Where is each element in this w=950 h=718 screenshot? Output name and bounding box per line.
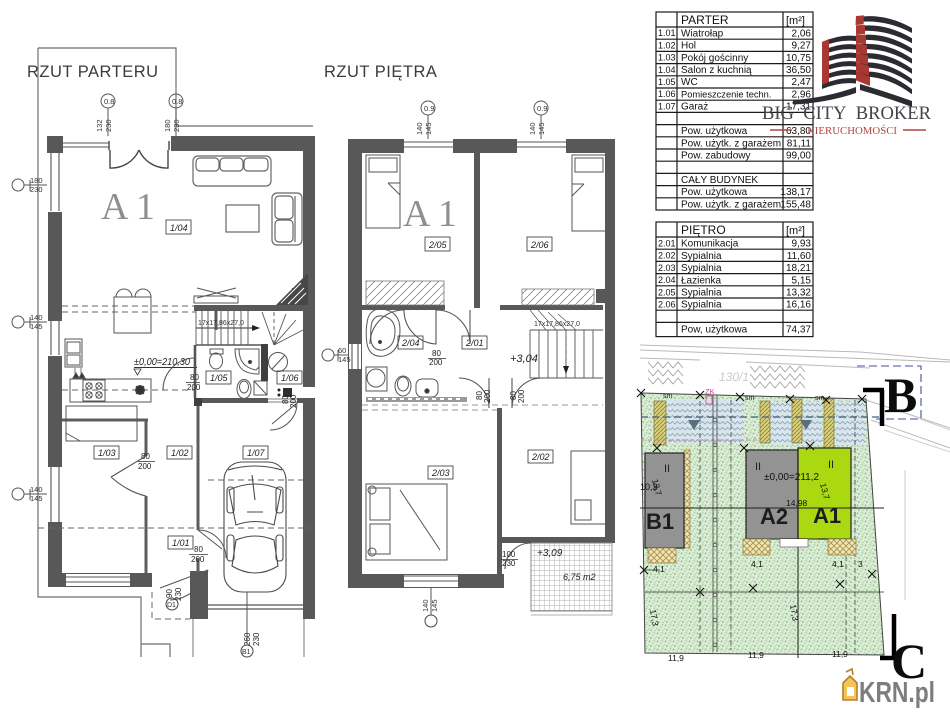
svg-text:RZUT PARTERU: RZUT PARTERU [27, 63, 159, 81]
svg-text:145: 145 [537, 122, 546, 135]
svg-text:230: 230 [252, 632, 261, 646]
svg-text:2,47: 2,47 [792, 77, 812, 88]
svg-text:200: 200 [429, 358, 443, 367]
svg-text:140: 140 [421, 599, 430, 612]
svg-text:Hol: Hol [681, 41, 696, 52]
svg-text:A 1: A 1 [403, 193, 457, 235]
svg-text:II: II [828, 459, 834, 471]
svg-text:Sypialnia: Sypialnia [681, 300, 722, 311]
svg-text:0.8: 0.8 [172, 97, 182, 106]
svg-text:sm: sm [663, 393, 673, 400]
svg-text:1/04: 1/04 [170, 223, 188, 233]
svg-text:1.03: 1.03 [658, 53, 676, 63]
svg-text:2/06: 2/06 [530, 240, 549, 250]
svg-text:180: 180 [163, 119, 172, 132]
svg-text:Sypialnia: Sypialnia [681, 263, 722, 274]
svg-text:sm: sm [815, 395, 825, 402]
svg-text:11,9: 11,9 [748, 650, 764, 660]
svg-text:1.05: 1.05 [658, 77, 676, 87]
svg-text:10,75: 10,75 [786, 53, 811, 64]
svg-text:B1: B1 [646, 509, 674, 534]
svg-text:81,11: 81,11 [787, 138, 812, 149]
svg-text:2.04: 2.04 [658, 275, 676, 285]
svg-text:0.9: 0.9 [424, 104, 434, 113]
svg-text:NIERUCHOMOŚCI: NIERUCHOMOŚCI [807, 125, 898, 137]
svg-text:11,60: 11,60 [787, 251, 812, 262]
svg-text:138,17: 138,17 [780, 187, 811, 198]
svg-text:1/03: 1/03 [98, 448, 116, 458]
svg-text:17x17,86x27,0: 17x17,86x27,0 [198, 320, 244, 327]
svg-text:1.01: 1.01 [658, 28, 676, 38]
svg-text:2/02: 2/02 [531, 452, 550, 462]
svg-text:Sypialnia: Sypialnia [681, 251, 722, 262]
svg-text:9,93: 9,93 [792, 239, 812, 250]
svg-text:sm: sm [745, 395, 755, 402]
svg-text:±0,00=210,30: ±0,00=210,30 [134, 356, 190, 368]
svg-text:180: 180 [30, 176, 43, 185]
svg-text:[m²]: [m²] [786, 15, 805, 27]
svg-text:0.9: 0.9 [537, 104, 547, 113]
svg-text:4,1: 4,1 [653, 564, 665, 574]
svg-text:1/06: 1/06 [281, 373, 299, 383]
svg-text:A1: A1 [813, 503, 841, 528]
svg-text:9,27: 9,27 [792, 41, 812, 52]
svg-text:1/02: 1/02 [171, 448, 189, 458]
svg-text:11,9: 11,9 [668, 653, 684, 663]
svg-text:BIG CITY BROKER: BIG CITY BROKER [762, 103, 931, 124]
svg-text:13,32: 13,32 [786, 288, 811, 299]
svg-text:145: 145 [424, 122, 433, 135]
svg-text:140: 140 [30, 313, 43, 322]
svg-text:PIĘTRO: PIĘTRO [681, 223, 726, 237]
svg-text:Salon z kuchnią: Salon z kuchnią [681, 65, 752, 76]
svg-text:Pow. użytkowa: Pow. użytkowa [681, 187, 748, 198]
svg-text:200: 200 [138, 462, 152, 471]
svg-text:90: 90 [165, 589, 174, 598]
svg-text:60: 60 [338, 346, 346, 355]
svg-text:Sypialnia: Sypialnia [681, 288, 722, 299]
svg-text:230: 230 [172, 119, 181, 132]
svg-text:155,48: 155,48 [780, 199, 811, 210]
svg-text:2.05: 2.05 [658, 287, 676, 297]
svg-text:[m²]: [m²] [786, 225, 805, 237]
svg-text:1.07: 1.07 [658, 101, 676, 111]
svg-text:140: 140 [30, 485, 43, 494]
svg-text:1.06: 1.06 [658, 89, 676, 99]
svg-text:Pow. użytk. z garażem: Pow. użytk. z garażem [681, 199, 781, 210]
svg-text:1/05: 1/05 [210, 373, 229, 383]
svg-text:145: 145 [430, 599, 439, 612]
svg-text:II: II [664, 463, 670, 475]
svg-text:Pow, użytkowa: Pow, użytkowa [681, 324, 748, 335]
svg-text:230: 230 [104, 119, 113, 132]
svg-text:16,16: 16,16 [786, 300, 811, 311]
svg-text:1/01: 1/01 [172, 538, 190, 548]
svg-text:145: 145 [30, 322, 43, 331]
svg-text:2/01: 2/01 [465, 338, 484, 348]
svg-text:1.02: 1.02 [658, 40, 676, 50]
svg-text:B: B [884, 367, 917, 423]
svg-text:3: 3 [858, 559, 863, 569]
svg-text:80: 80 [194, 545, 203, 554]
svg-text:130/1: 130/1 [719, 370, 749, 384]
svg-text:B1: B1 [242, 649, 251, 656]
svg-text:II: II [755, 461, 761, 473]
svg-text:2/03: 2/03 [431, 468, 450, 478]
svg-text:Wiatrołap: Wiatrołap [681, 28, 724, 39]
svg-text:200: 200 [187, 383, 201, 392]
svg-text:Pokój gościnny: Pokój gościnny [681, 53, 748, 64]
svg-text:2.06: 2.06 [658, 300, 676, 310]
svg-text:230: 230 [30, 185, 43, 194]
svg-text:132: 132 [95, 119, 104, 132]
svg-text:2.02: 2.02 [658, 251, 676, 261]
svg-text:4,1: 4,1 [751, 559, 763, 569]
svg-text:2/04: 2/04 [401, 338, 420, 348]
svg-text:11,9: 11,9 [832, 649, 848, 659]
svg-text:Pomieszczenie techn.: Pomieszczenie techn. [681, 89, 771, 99]
svg-text:18,21: 18,21 [786, 263, 811, 274]
svg-text:80: 80 [432, 349, 441, 358]
svg-text:14,98: 14,98 [786, 498, 808, 508]
svg-text:WC: WC [681, 77, 698, 88]
svg-text:230: 230 [502, 559, 516, 568]
svg-text:200: 200 [483, 389, 492, 403]
svg-text:Pow. użytkowa: Pow. użytkowa [681, 126, 748, 137]
svg-text:+3,04: +3,04 [510, 353, 538, 365]
svg-text:200: 200 [517, 389, 526, 403]
svg-text:D1: D1 [167, 602, 176, 609]
svg-text:1/07: 1/07 [247, 448, 266, 458]
svg-text:6,75 m2: 6,75 m2 [563, 572, 596, 582]
svg-text:RZUT PIĘTRA: RZUT PIĘTRA [324, 63, 437, 81]
svg-text:140: 140 [415, 122, 424, 135]
svg-text:1.04: 1.04 [658, 65, 676, 75]
svg-text:200: 200 [191, 555, 205, 564]
svg-text:2/05: 2/05 [428, 240, 448, 250]
svg-text:Garaż: Garaż [681, 102, 708, 113]
svg-text:100: 100 [502, 550, 516, 559]
svg-text:140: 140 [528, 122, 537, 135]
svg-text:+3,09: +3,09 [537, 548, 563, 559]
svg-text:145: 145 [30, 494, 43, 503]
svg-text:5,15: 5,15 [792, 275, 812, 286]
svg-text:200: 200 [289, 394, 298, 408]
svg-text:CAŁY BUDYNEK: CAŁY BUDYNEK [681, 175, 758, 186]
svg-text:Pow. zabudowy: Pow. zabudowy [681, 151, 751, 162]
svg-text:36,50: 36,50 [786, 65, 811, 76]
svg-text:0.8: 0.8 [104, 97, 114, 106]
svg-text:2,06: 2,06 [792, 28, 812, 39]
svg-text:2.03: 2.03 [658, 263, 676, 273]
svg-text:2.01: 2.01 [658, 239, 676, 249]
svg-text:17x17,86x27,0: 17x17,86x27,0 [534, 321, 580, 328]
svg-text:±0,00=211,2: ±0,00=211,2 [764, 472, 820, 483]
svg-text:Łazienka: Łazienka [681, 275, 721, 286]
svg-text:4,1: 4,1 [832, 559, 844, 569]
svg-text:PARTER: PARTER [681, 13, 729, 27]
svg-text:ZK: ZK [705, 387, 715, 396]
svg-text:KRN.pl: KRN.pl [859, 677, 935, 709]
svg-text:145: 145 [338, 355, 351, 364]
svg-text:Komunikacja: Komunikacja [681, 239, 739, 250]
svg-text:A 1: A 1 [101, 186, 155, 228]
svg-text:Pow. użytk. z garażem: Pow. użytk. z garażem [681, 138, 781, 149]
svg-text:99,00: 99,00 [786, 151, 811, 162]
svg-text:74,37: 74,37 [786, 324, 811, 335]
